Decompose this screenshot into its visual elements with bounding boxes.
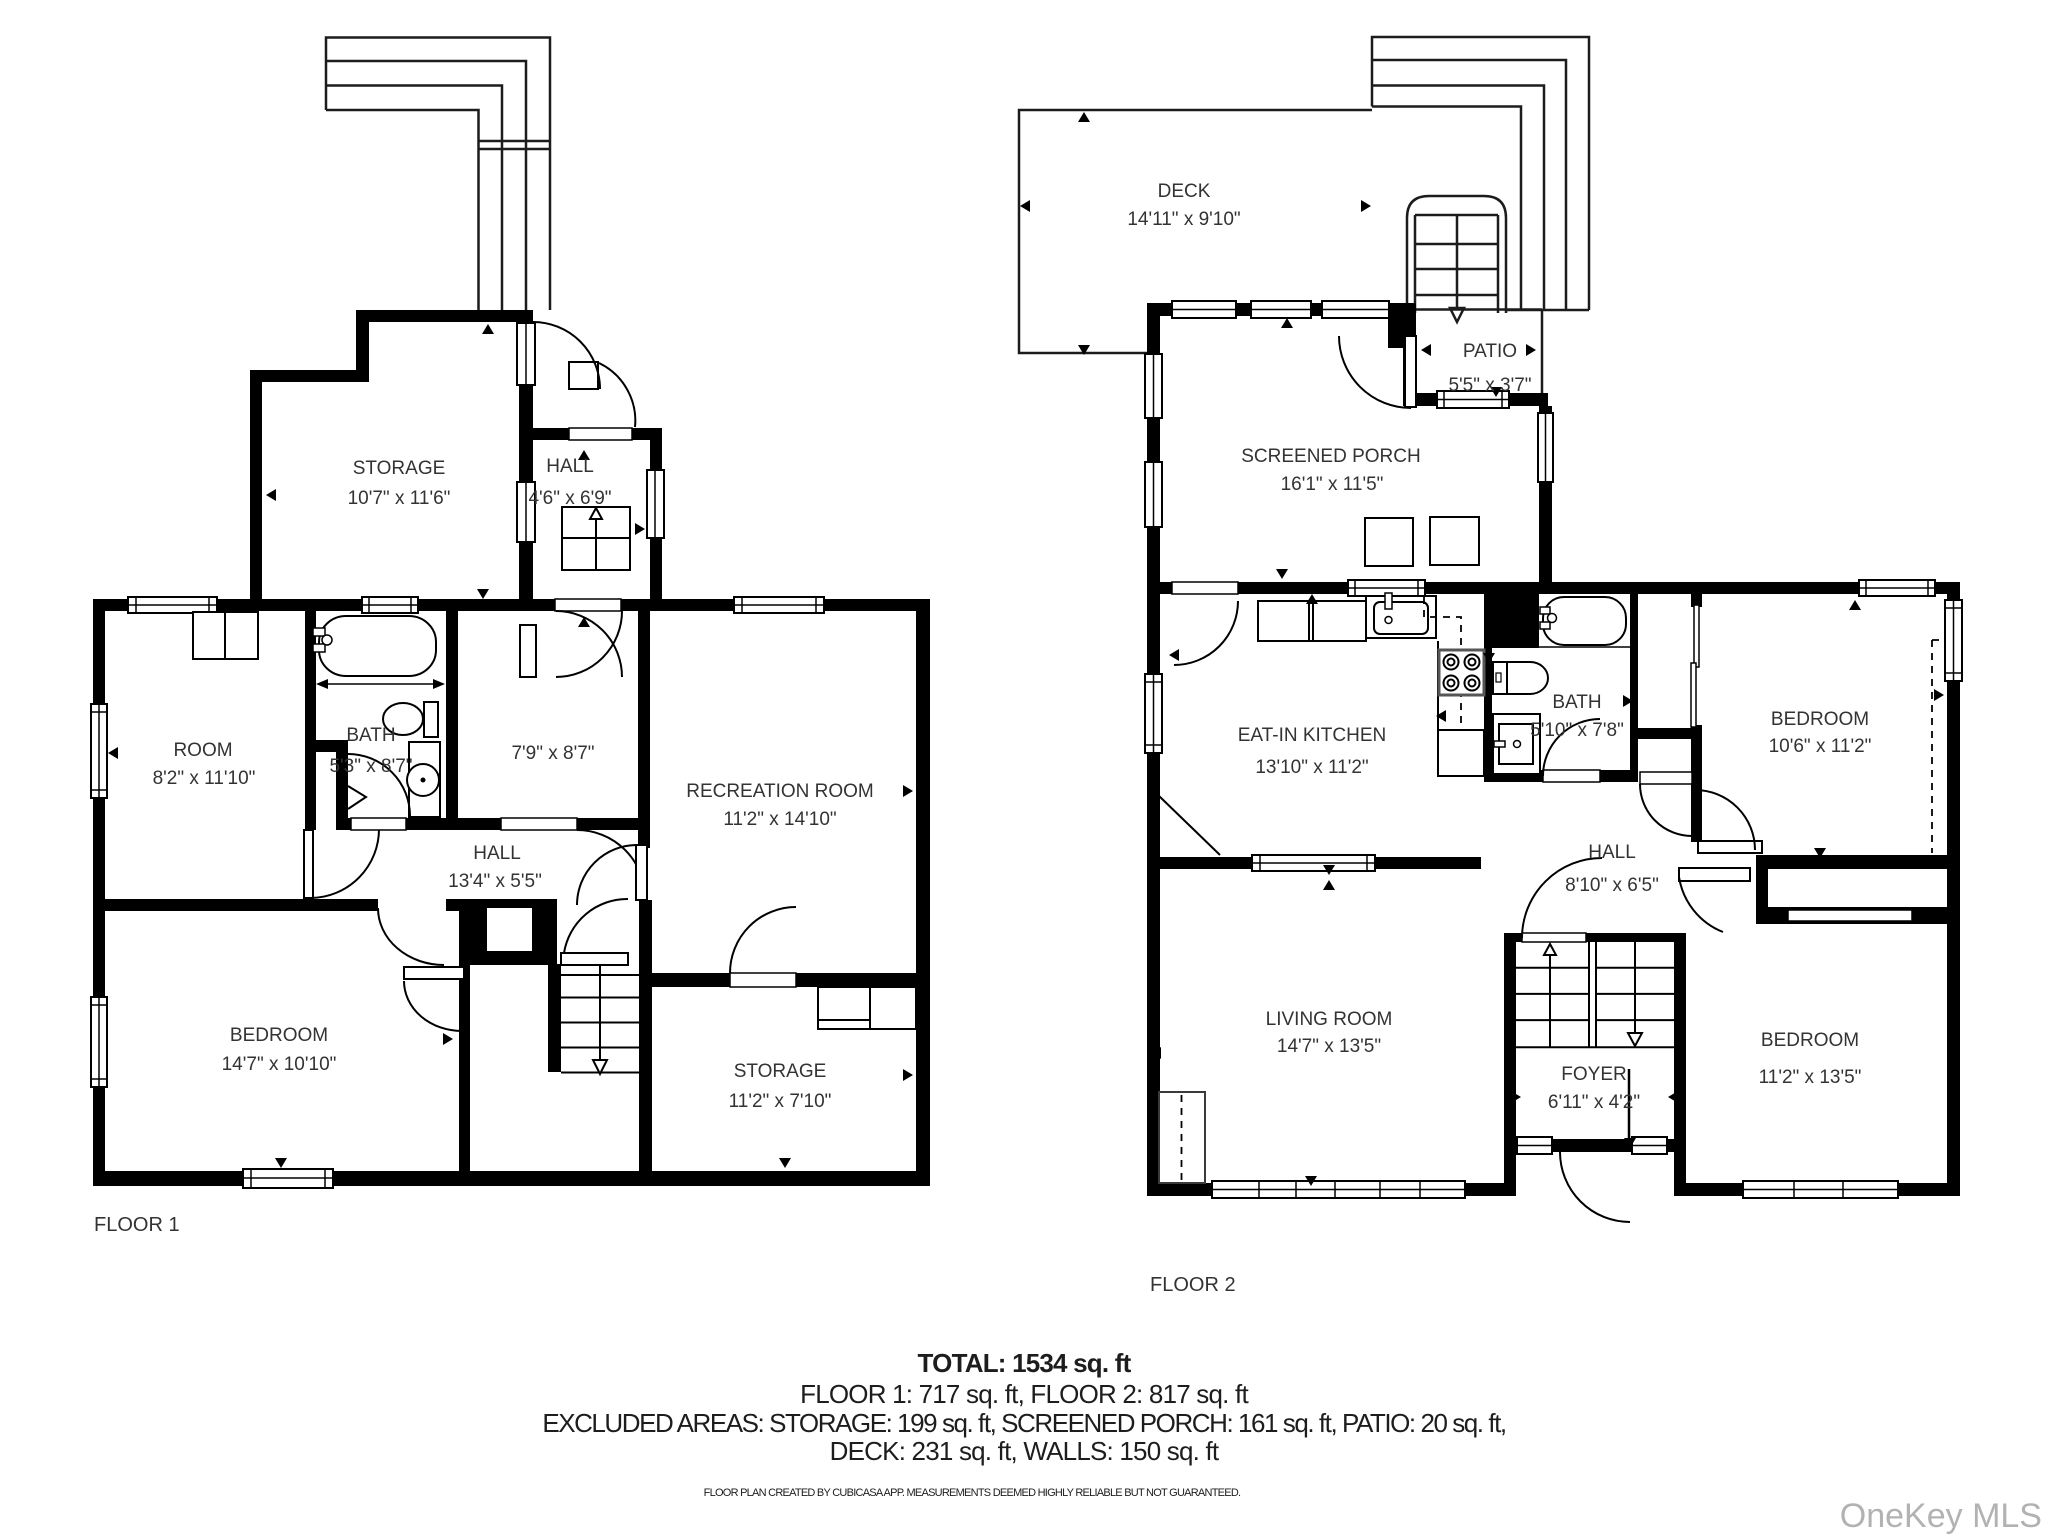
- svg-text:HALL: HALL: [1588, 842, 1636, 863]
- svg-text:5'10" x 7'8": 5'10" x 7'8": [1530, 720, 1624, 741]
- svg-text:OneKey MLS: OneKey MLS: [1840, 1497, 2042, 1535]
- svg-text:11'2" x 7'10": 11'2" x 7'10": [729, 1091, 832, 1112]
- svg-text:BATH: BATH: [346, 725, 395, 746]
- svg-text:EAT-IN KITCHEN: EAT-IN KITCHEN: [1238, 725, 1387, 746]
- svg-text:BEDROOM: BEDROOM: [230, 1025, 328, 1046]
- svg-text:ROOM: ROOM: [173, 740, 232, 761]
- svg-text:LIVING ROOM: LIVING ROOM: [1266, 1009, 1393, 1030]
- svg-text:5'5" x 3'7": 5'5" x 3'7": [1448, 375, 1531, 396]
- svg-text:FLOOR PLAN CREATED BY CUBICASA: FLOOR PLAN CREATED BY CUBICASA APP. MEAS…: [704, 1487, 1241, 1499]
- svg-text:13'4" x 5'5": 13'4" x 5'5": [448, 871, 542, 892]
- svg-text:11'2" x 14'10": 11'2" x 14'10": [723, 809, 836, 830]
- svg-text:10'7" x 11'6": 10'7" x 11'6": [348, 488, 451, 509]
- svg-text:FLOOR 2: FLOOR 2: [1150, 1274, 1236, 1296]
- svg-text:11'2" x 13'5": 11'2" x 13'5": [1759, 1067, 1862, 1088]
- svg-text:DECK: DECK: [1158, 181, 1211, 202]
- svg-text:FLOOR 1: 717 sq. ft, FLOOR 2:: FLOOR 1: 717 sq. ft, FLOOR 2: 817 sq. ft: [800, 1379, 1249, 1409]
- svg-text:PATIO: PATIO: [1463, 341, 1517, 362]
- svg-text:STORAGE: STORAGE: [734, 1061, 827, 1082]
- svg-text:TOTAL: 1534 sq. ft: TOTAL: 1534 sq. ft: [918, 1348, 1132, 1378]
- svg-text:FLOOR 1: FLOOR 1: [94, 1214, 180, 1236]
- svg-text:14'7" x 13'5": 14'7" x 13'5": [1277, 1036, 1381, 1057]
- svg-text:STORAGE: STORAGE: [353, 458, 446, 479]
- svg-text:6'11" x 4'2": 6'11" x 4'2": [1548, 1092, 1640, 1113]
- svg-text:8'10" x 6'5": 8'10" x 6'5": [1565, 875, 1659, 896]
- svg-text:10'6" x 11'2": 10'6" x 11'2": [1769, 736, 1872, 757]
- svg-text:4'6" x 6'9": 4'6" x 6'9": [528, 488, 611, 509]
- svg-text:16'1" x 11'5": 16'1" x 11'5": [1281, 474, 1384, 495]
- svg-text:8'2" x 11'10": 8'2" x 11'10": [153, 768, 256, 789]
- svg-text:5'3" x 8'7": 5'3" x 8'7": [329, 756, 412, 777]
- svg-text:HALL: HALL: [473, 843, 521, 864]
- svg-text:BATH: BATH: [1552, 692, 1601, 713]
- svg-text:RECREATION ROOM: RECREATION ROOM: [686, 781, 874, 802]
- svg-text:SCREENED PORCH: SCREENED PORCH: [1241, 446, 1420, 467]
- svg-text:BEDROOM: BEDROOM: [1771, 709, 1869, 730]
- svg-text:7'9" x 8'7": 7'9" x 8'7": [511, 743, 594, 764]
- svg-text:13'10" x 11'2": 13'10" x 11'2": [1255, 757, 1368, 778]
- svg-text:DECK: 231 sq. ft, WALLS: 150 s: DECK: 231 sq. ft, WALLS: 150 sq. ft: [830, 1436, 1220, 1466]
- svg-text:HALL: HALL: [546, 456, 594, 477]
- svg-text:14'7" x 10'10": 14'7" x 10'10": [222, 1054, 337, 1075]
- svg-text:EXCLUDED AREAS: STORAGE: 199 s: EXCLUDED AREAS: STORAGE: 199 sq. ft, SCR…: [542, 1408, 1505, 1438]
- svg-text:FOYER: FOYER: [1561, 1064, 1626, 1085]
- svg-text:BEDROOM: BEDROOM: [1761, 1030, 1859, 1051]
- svg-text:14'11" x 9'10": 14'11" x 9'10": [1127, 209, 1240, 230]
